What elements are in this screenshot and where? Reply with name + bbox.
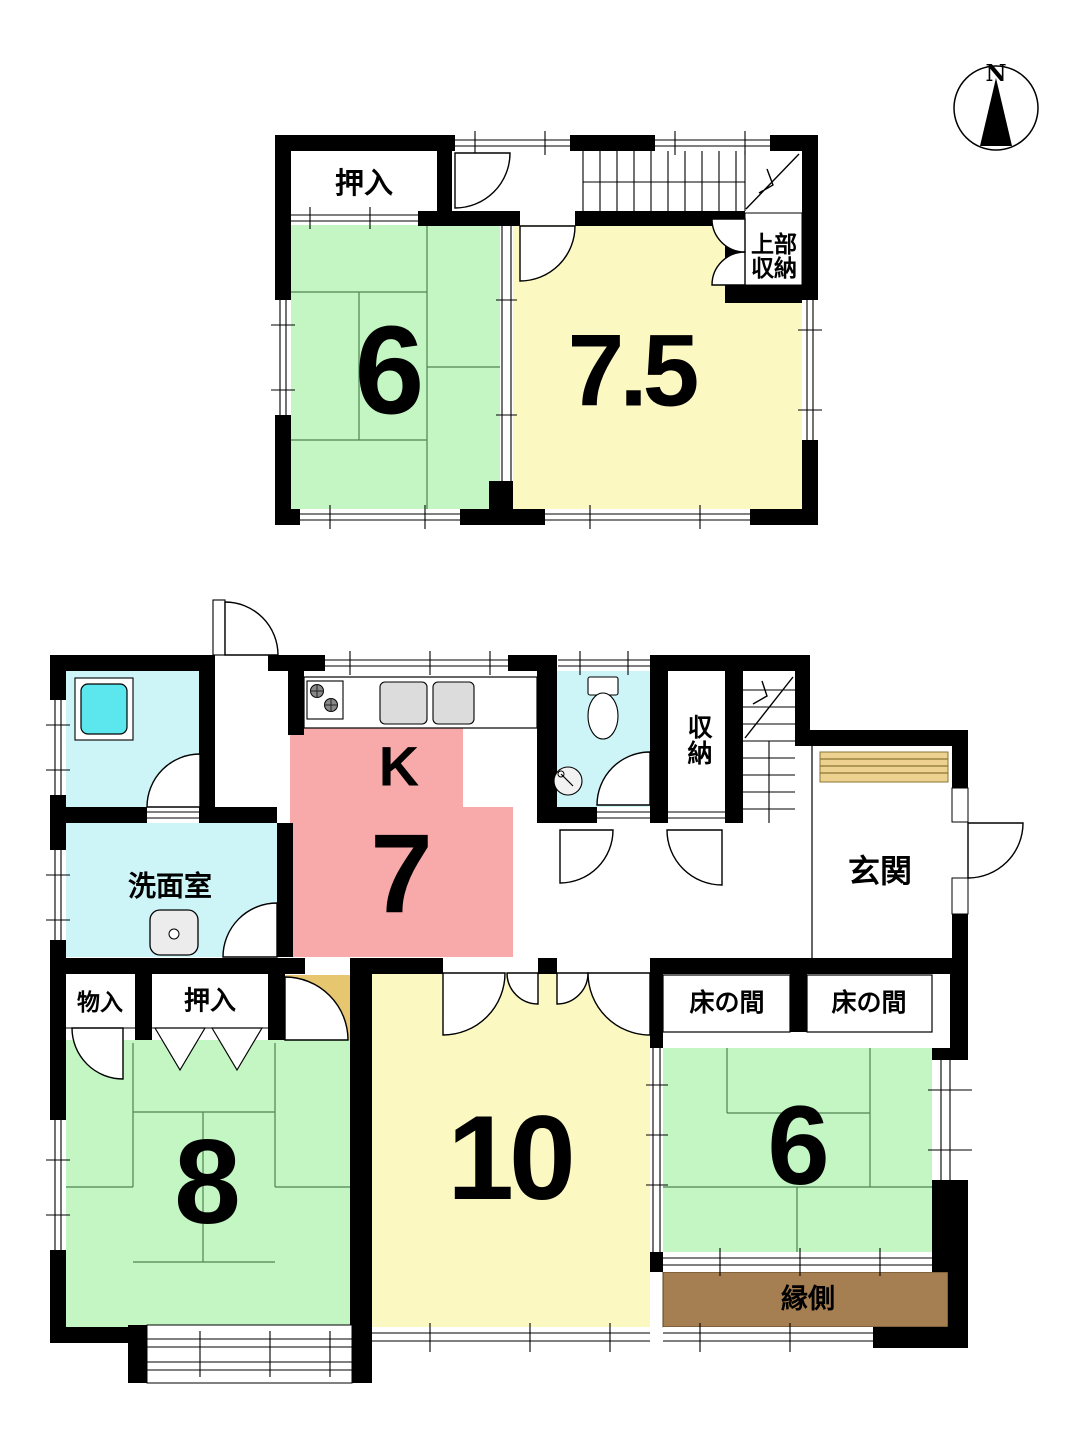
label-tokonoma-left: 床の間 [689, 990, 764, 1016]
compass-north-label: N [985, 62, 1006, 86]
label-2f-upper-storage: 上部収納 [747, 232, 801, 280]
label-storage: 収納 [686, 715, 714, 768]
label-entrance: 玄関 [848, 855, 912, 889]
toilet-icon [588, 693, 618, 739]
label-room10-size: 10 [447, 1095, 570, 1221]
floor-plan-drawing [0, 0, 1086, 1455]
label-kitchen-size: 7 [370, 815, 427, 933]
floor-plan-page: N 押入 上部収納 6 7.5 洗面室 K 7 収納 玄関 物入 押入 床の間 … [0, 0, 1086, 1455]
label-1f-closet: 押入 [184, 987, 236, 1014]
door-arc-back-entry [225, 602, 278, 655]
label-kitchen-letter: K [379, 738, 419, 797]
label-2f-closet: 押入 [335, 169, 393, 199]
door-arc-entrance [968, 823, 1023, 878]
bathtub-icon [81, 684, 127, 734]
back-door-leaf [213, 600, 225, 655]
label-2f-room75-size: 7.5 [568, 317, 695, 424]
sink-basin-icon [380, 682, 427, 724]
label-tokonoma-right: 床の間 [831, 990, 906, 1016]
sink-basin-icon-2 [433, 682, 474, 724]
entrance-step [820, 752, 948, 782]
label-small-storage: 物入 [77, 990, 123, 1014]
kitchen-notch [463, 728, 513, 807]
label-washroom: 洗面室 [128, 871, 212, 900]
label-veranda: 縁側 [781, 1285, 835, 1313]
label-1f-room6-size: 6 [767, 1087, 824, 1205]
kitchen-fixtures [304, 677, 537, 728]
label-room8-size: 8 [174, 1119, 236, 1245]
label-2f-room6-size: 6 [355, 305, 420, 436]
